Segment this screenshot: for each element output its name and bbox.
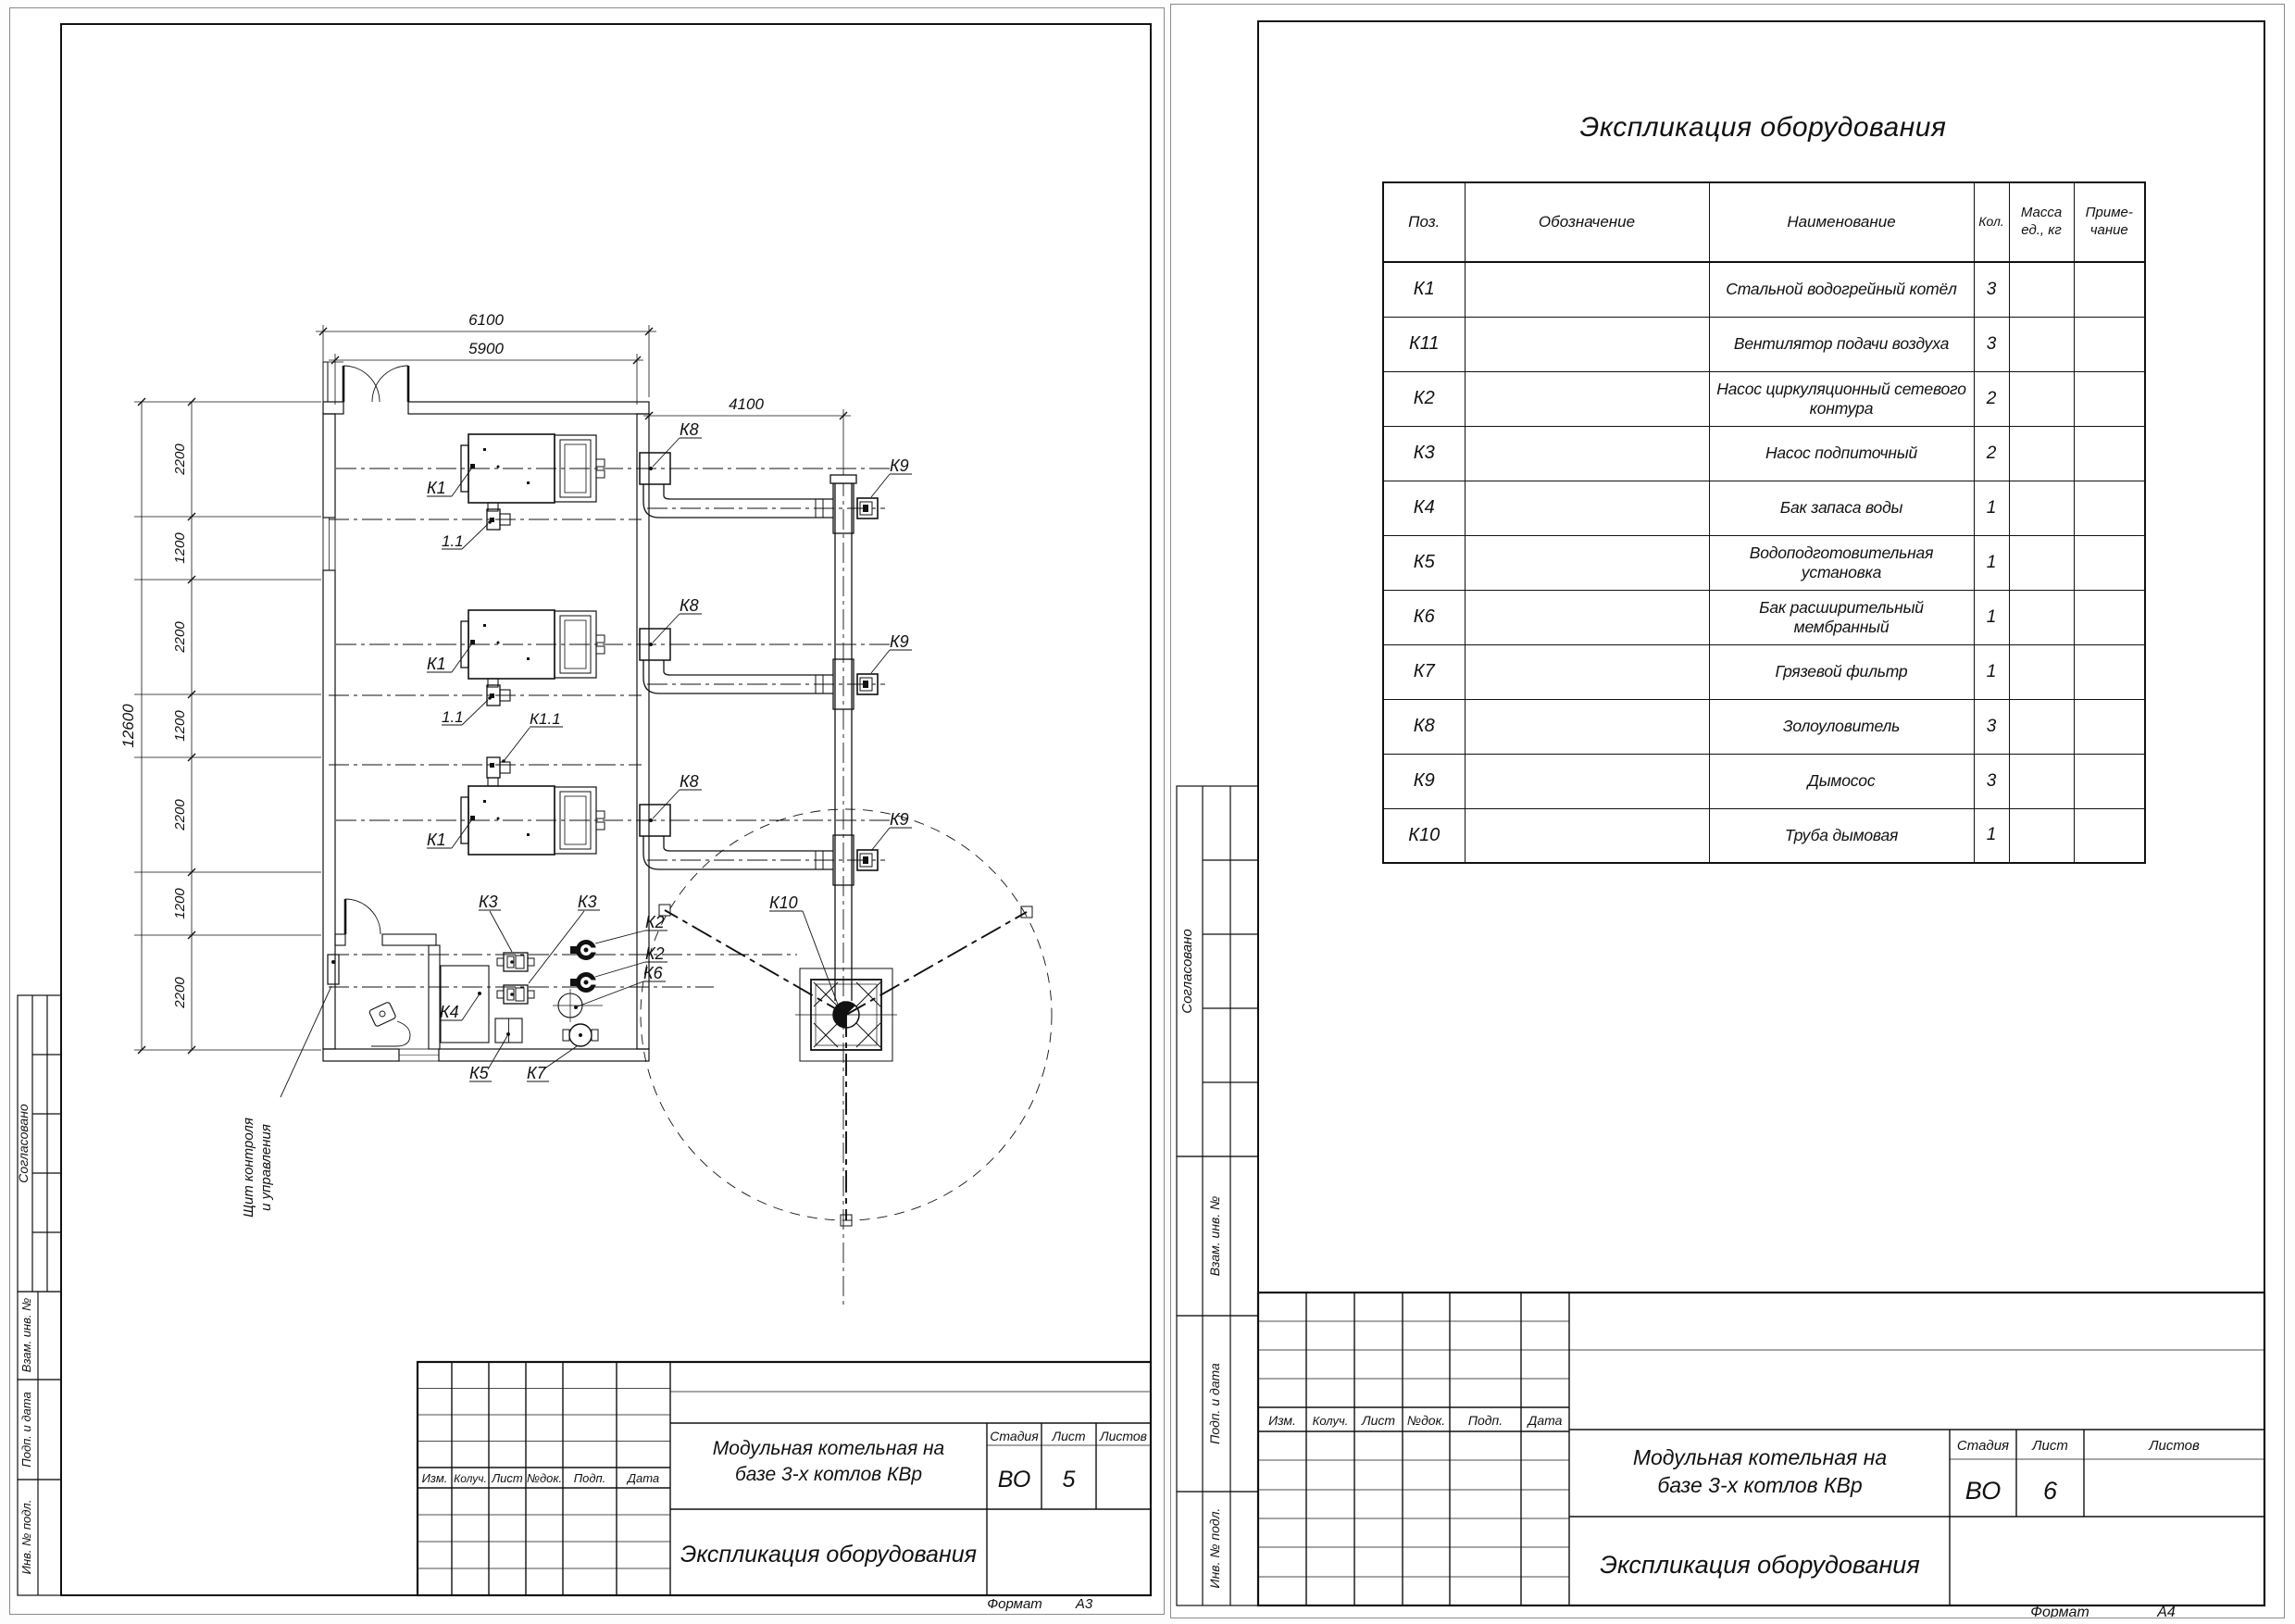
rev-data: Дата xyxy=(1527,1413,1563,1428)
cell-designation xyxy=(1465,535,1709,590)
cell-pos: К10 xyxy=(1383,808,1465,863)
sheets-label: Листов xyxy=(2148,1438,2200,1454)
table-row: К3 Насос подпиточный 2 xyxy=(1383,426,2145,481)
stage-label: Стадия xyxy=(1957,1438,2009,1454)
table-row: К6 Бак расширительный мембранный 1 xyxy=(1383,590,2145,644)
table-title: Экспликация оборудования xyxy=(1382,112,2144,144)
dim-seg-3: 2200 xyxy=(172,621,188,654)
table-row: К2 Насос циркуляционный сетевого контура… xyxy=(1383,371,2145,426)
fan-3: К1.1 xyxy=(487,710,563,786)
svg-text:К2: К2 xyxy=(645,913,665,931)
rev-data: Дата xyxy=(626,1471,659,1485)
tank-k4: К4 xyxy=(440,966,489,1043)
rev-ndok: №док. xyxy=(1407,1413,1445,1428)
cell-note xyxy=(2074,262,2145,317)
header-designation: Обозначение xyxy=(1465,182,1709,262)
cell-qty: 1 xyxy=(1974,590,2009,644)
cell-pos: К8 xyxy=(1383,699,1465,754)
table-header-row: Поз. Обозначение Наименование Кол. Масса… xyxy=(1383,182,2145,262)
rev-list: Лист xyxy=(491,1471,523,1485)
side-block xyxy=(1177,786,1258,1605)
rev-ndok: №док. xyxy=(527,1471,562,1485)
plan-drawing: Согласовано Взам. инв. № Подп. и дата Ин… xyxy=(10,8,1164,1614)
cell-note xyxy=(2074,371,2145,426)
dim-duct-span: 4100 xyxy=(729,395,764,413)
svg-text:К8: К8 xyxy=(680,596,699,615)
format-value: А3 xyxy=(1075,1596,1093,1612)
cell-name: Труба дымовая xyxy=(1709,808,1974,863)
cell-designation xyxy=(1465,317,1709,371)
cell-note xyxy=(2074,535,2145,590)
flue-2: К8 К9 xyxy=(640,596,912,709)
chimney: К10 xyxy=(641,809,1052,1226)
svg-text:К9: К9 xyxy=(890,810,909,829)
rev-koluch: Колуч. xyxy=(1313,1414,1349,1428)
cell-mass xyxy=(2009,371,2074,426)
table-row: К10 Труба дымовая 1 xyxy=(1383,808,2145,863)
table-row: К9 Дымосос 3 xyxy=(1383,754,2145,808)
format-label: Формат xyxy=(987,1596,1042,1612)
cell-mass xyxy=(2009,644,2074,699)
dim-inner-width: 5900 xyxy=(468,340,504,357)
cell-name: Вентилятор подачи воздуха xyxy=(1709,317,1974,371)
svg-text:1.1: 1.1 xyxy=(442,532,464,550)
cell-name: Насос циркуляционный сетевого контура xyxy=(1709,371,1974,426)
feed-pump-k3-1: К3 xyxy=(479,893,534,971)
side-label-approved: Согласовано xyxy=(16,1104,31,1183)
svg-text:К8: К8 xyxy=(680,772,699,791)
cell-mass xyxy=(2009,481,2074,535)
rev-podp: Подп. xyxy=(574,1471,606,1485)
cell-name: Золоуловитель xyxy=(1709,699,1974,754)
cell-qty: 3 xyxy=(1974,754,2009,808)
axes xyxy=(329,468,890,1305)
cell-note xyxy=(2074,754,2145,808)
table-row: К11 Вентилятор подачи воздуха 3 xyxy=(1383,317,2145,371)
title-block: Изм. Колуч. Лист №док. Подп. Дата Модуль… xyxy=(418,1362,1151,1595)
dirt-filter-k7: К7 xyxy=(527,1024,598,1082)
cell-mass xyxy=(2009,262,2074,317)
sheet-number: 6 xyxy=(2043,1477,2058,1505)
side-label-approved: Согласовано xyxy=(1179,929,1195,1014)
cell-mass xyxy=(2009,426,2074,481)
table-row: К1 Стальной водогрейный котёл 3 xyxy=(1383,262,2145,317)
svg-text:К9: К9 xyxy=(890,632,909,651)
side-label-inv: Инв. № подл. xyxy=(1207,1508,1222,1589)
sheets-label: Листов xyxy=(1099,1429,1147,1443)
cell-note xyxy=(2074,481,2145,535)
svg-text:К1: К1 xyxy=(427,655,446,673)
sheet-number: 5 xyxy=(1063,1467,1076,1493)
cell-mass xyxy=(2009,590,2074,644)
cell-mass xyxy=(2009,754,2074,808)
cell-qty: 3 xyxy=(1974,262,2009,317)
title-block: Изм. Колуч. Лист №док. Подп. Дата Модуль… xyxy=(1258,1293,2264,1605)
cell-pos: К5 xyxy=(1383,535,1465,590)
project-name-line1: Модульная котельная на xyxy=(1633,1445,1887,1469)
table-row: К7 Грязевой фильтр 1 xyxy=(1383,644,2145,699)
project-name-line1: Модульная котельная на xyxy=(713,1438,944,1459)
side-label-podp: Подп. и дата xyxy=(19,1392,33,1467)
cell-note xyxy=(2074,426,2145,481)
drawing-frame xyxy=(61,24,1151,1595)
doc-title: Экспликация оборудования xyxy=(680,1542,977,1568)
cell-pos: К9 xyxy=(1383,754,1465,808)
doc-title: Экспликация оборудования xyxy=(1600,1551,1920,1579)
side-label-vzam: Взам. инв. № xyxy=(1207,1196,1222,1277)
sheet-a4-specification: Согласовано Взам. инв. № Подп. и дата Ин… xyxy=(1170,4,2285,1618)
dim-seg-4: 1200 xyxy=(172,710,188,742)
side-label-vzam: Взам. инв. № xyxy=(19,1298,33,1372)
svg-text:К2: К2 xyxy=(645,944,665,963)
workspace: Согласовано Взам. инв. № Подп. и дата Ин… xyxy=(0,0,2295,1624)
svg-text:К5: К5 xyxy=(469,1064,490,1082)
window xyxy=(323,518,335,570)
equipment-table: Поз. Обозначение Наименование Кол. Масса… xyxy=(1382,181,2146,864)
cell-name: Бак запаса воды xyxy=(1709,481,1974,535)
svg-text:К8: К8 xyxy=(680,420,699,439)
sheet-label: Лист xyxy=(1051,1429,1085,1443)
svg-text:К4: К4 xyxy=(440,1003,459,1021)
flue-3: К8 К9 xyxy=(640,772,912,885)
dim-seg-1: 2200 xyxy=(172,443,188,476)
cell-name: Водоподготовительная установка xyxy=(1709,535,1974,590)
guy-wires xyxy=(665,910,1027,1220)
svg-text:К3: К3 xyxy=(479,893,498,911)
cell-mass xyxy=(2009,808,2074,863)
dim-seg-2: 1200 xyxy=(172,532,188,564)
project-name-line2: базе 3-х котлов КВр xyxy=(1657,1473,1863,1497)
cell-pos: К7 xyxy=(1383,644,1465,699)
sheet-a3-plan: Согласовано Взам. инв. № Подп. и дата Ин… xyxy=(9,7,1165,1615)
side-label-inv: Инв. № подл. xyxy=(19,1500,33,1575)
cell-qty: 3 xyxy=(1974,317,2009,371)
cell-pos: К11 xyxy=(1383,317,1465,371)
cell-pos: К6 xyxy=(1383,590,1465,644)
table-row: К4 Бак запаса воды 1 xyxy=(1383,481,2145,535)
cell-designation xyxy=(1465,481,1709,535)
cell-name: Стальной водогрейный котёл xyxy=(1709,262,1974,317)
cell-note xyxy=(2074,808,2145,863)
sheet-label: Лист xyxy=(2031,1438,2068,1454)
dim-outer-width: 6100 xyxy=(468,311,504,329)
rev-podp: Подп. xyxy=(1468,1413,1503,1428)
cell-name: Насос подпиточный xyxy=(1709,426,1974,481)
rev-izm: Изм. xyxy=(422,1471,448,1485)
cell-designation xyxy=(1465,754,1709,808)
cell-designation xyxy=(1465,590,1709,644)
header-mass: Масса ед., кг xyxy=(2009,182,2074,262)
cell-designation xyxy=(1465,808,1709,863)
side-label-podp: Подп. и дата xyxy=(1207,1363,1222,1444)
cell-qty: 1 xyxy=(1974,535,2009,590)
svg-text:К1: К1 xyxy=(427,831,446,849)
cell-pos: К2 xyxy=(1383,371,1465,426)
flue-1: К8 К9 xyxy=(640,420,912,533)
cell-pos: К4 xyxy=(1383,481,1465,535)
cell-qty: 1 xyxy=(1974,481,2009,535)
cell-pos: К1 xyxy=(1383,262,1465,317)
cell-mass xyxy=(2009,535,2074,590)
rev-koluch: Колуч. xyxy=(454,1472,487,1485)
svg-text:К9: К9 xyxy=(890,456,909,475)
cell-pos: К3 xyxy=(1383,426,1465,481)
table-row: К5 Водоподготовительная установка 1 xyxy=(1383,535,2145,590)
svg-text:1.1: 1.1 xyxy=(442,708,464,726)
stage-label: Стадия xyxy=(990,1429,1039,1443)
cell-name: Грязевой фильтр xyxy=(1709,644,1974,699)
header-pos: Поз. xyxy=(1383,182,1465,262)
cell-note xyxy=(2074,590,2145,644)
cell-mass xyxy=(2009,699,2074,754)
cell-designation xyxy=(1465,426,1709,481)
sink xyxy=(368,1002,410,1046)
control-panel: Щит контроля и управления xyxy=(241,955,339,1218)
dim-seg-6: 1200 xyxy=(172,888,188,919)
project-name-line2: базе 3-х котлов КВр xyxy=(735,1464,922,1485)
svg-text:К1.1: К1.1 xyxy=(530,710,561,728)
entrance-door xyxy=(343,366,408,402)
header-qty: Кол. xyxy=(1974,182,2009,262)
svg-text:и управления: и управления xyxy=(258,1124,274,1211)
format-value: А4 xyxy=(2156,1605,2176,1618)
cell-qty: 3 xyxy=(1974,699,2009,754)
dim-seg-7: 2200 xyxy=(172,977,188,1009)
cell-designation xyxy=(1465,699,1709,754)
dim-total-height: 12600 xyxy=(119,704,137,748)
svg-text:К3: К3 xyxy=(578,893,597,911)
cell-note xyxy=(2074,644,2145,699)
cell-designation xyxy=(1465,644,1709,699)
room-door xyxy=(345,899,380,934)
rev-izm: Изм. xyxy=(1268,1413,1296,1428)
cell-qty: 1 xyxy=(1974,644,2009,699)
water-treatment-k5: К5 xyxy=(469,1018,522,1082)
svg-text:К6: К6 xyxy=(643,964,664,982)
header-note: Приме- чание xyxy=(2074,182,2145,262)
svg-text:Щит контроля: Щит контроля xyxy=(241,1118,256,1218)
cell-mass xyxy=(2009,317,2074,371)
stage-value: ВО xyxy=(1965,1477,2001,1505)
svg-text:К10: К10 xyxy=(769,893,798,912)
cell-name: Бак расширительный мембранный xyxy=(1709,590,1974,644)
cell-note xyxy=(2074,317,2145,371)
cell-designation xyxy=(1465,371,1709,426)
cell-note xyxy=(2074,699,2145,754)
format-label: Формат xyxy=(2030,1605,2089,1618)
cell-name: Дымосос xyxy=(1709,754,1974,808)
equipment-table-wrap: Поз. Обозначение Наименование Кол. Масса… xyxy=(1382,181,2146,864)
fan-1: 1.1 xyxy=(442,503,510,550)
table-row: К8 Золоуловитель 3 xyxy=(1383,699,2145,754)
fan-2: 1.1 xyxy=(442,679,510,726)
svg-text:К1: К1 xyxy=(427,479,446,497)
cell-qty: 1 xyxy=(1974,808,2009,863)
dim-seg-5: 2200 xyxy=(172,799,188,831)
stage-value: ВО xyxy=(998,1467,1031,1493)
cell-designation xyxy=(1465,262,1709,317)
rev-list: Лист xyxy=(1361,1413,1395,1428)
cell-qty: 2 xyxy=(1974,426,2009,481)
svg-text:К7: К7 xyxy=(527,1064,547,1082)
cell-qty: 2 xyxy=(1974,371,2009,426)
header-name: Наименование xyxy=(1709,182,1974,262)
